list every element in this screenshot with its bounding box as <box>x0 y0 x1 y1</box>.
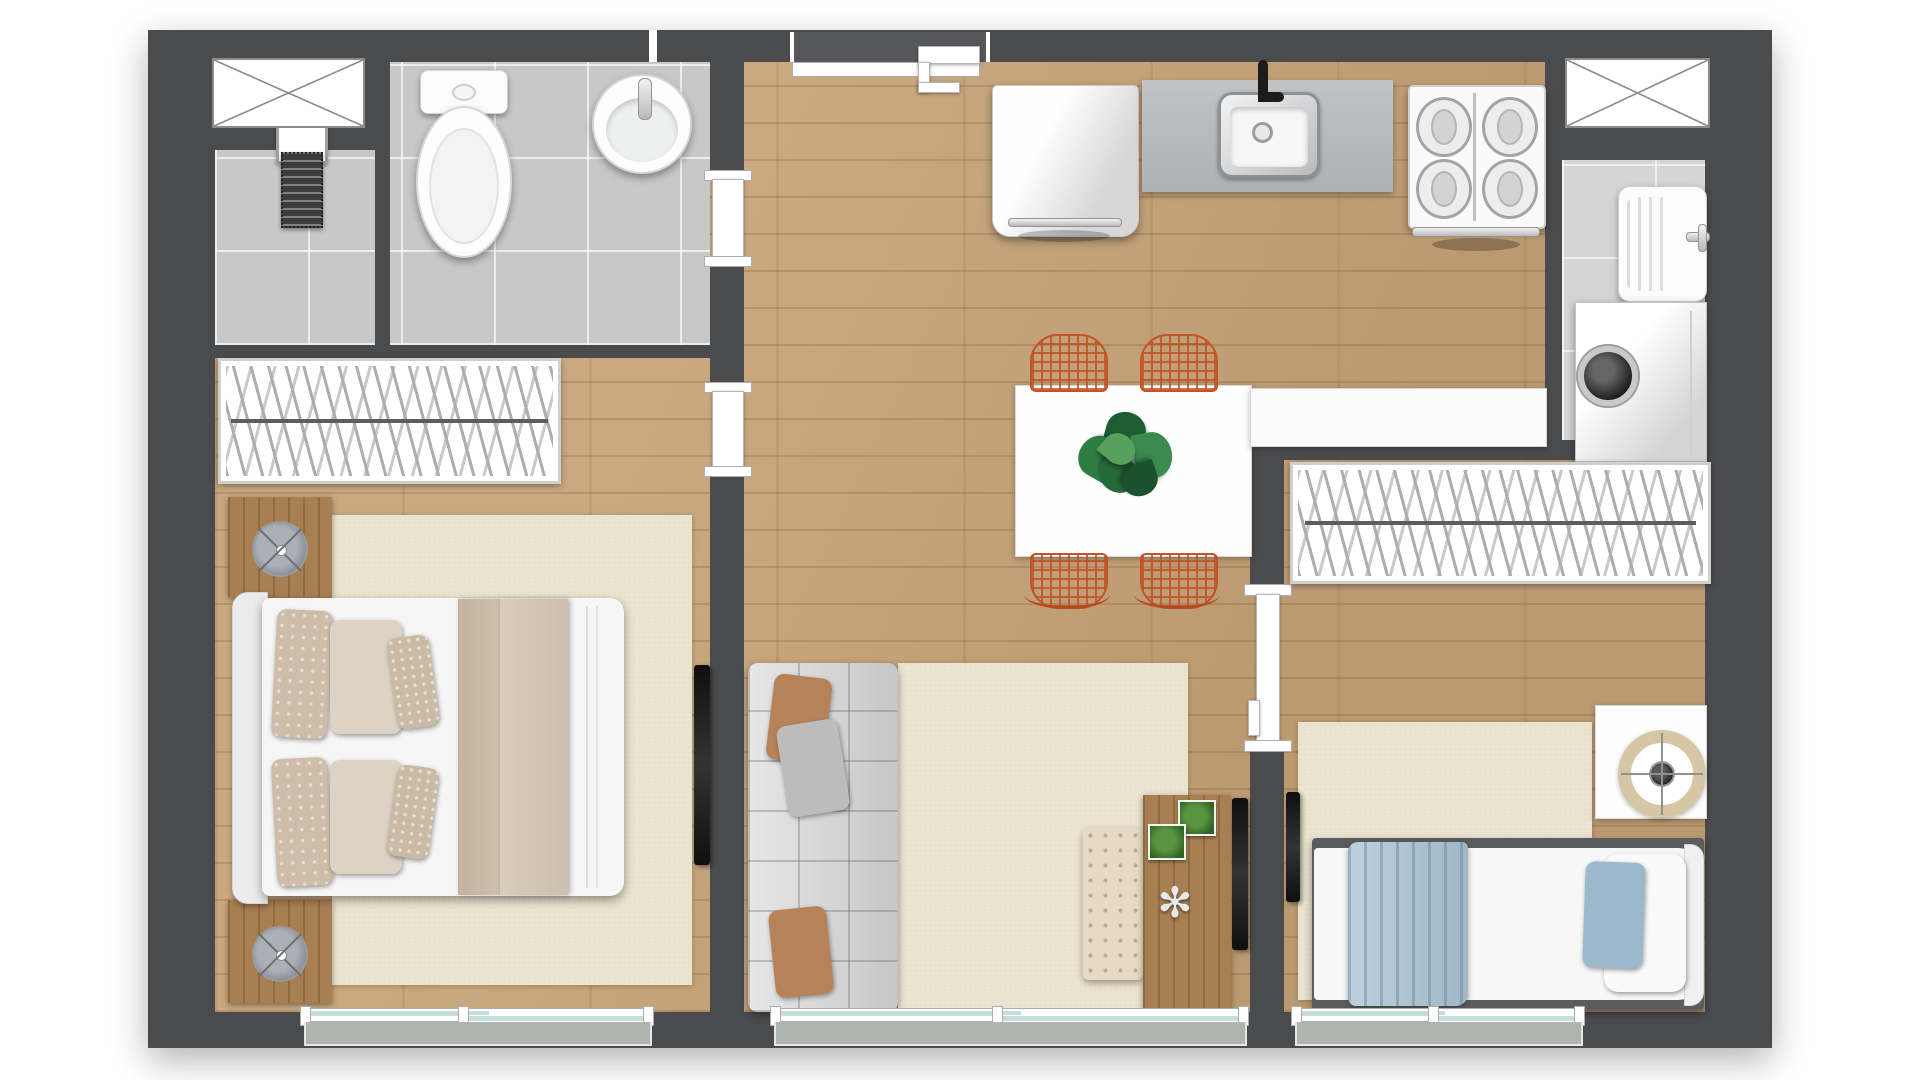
window-glass <box>466 1015 648 1022</box>
bed-pillow <box>271 609 334 740</box>
bed-throw-band <box>458 599 500 895</box>
bed-throw-band <box>500 599 568 895</box>
bedroom1-door-jamb-bottom <box>704 466 752 477</box>
wardrobe-rail <box>1305 521 1695 525</box>
laundry-faucet-stem <box>1698 224 1707 252</box>
bathroom-door-jamb-bottom <box>704 256 752 267</box>
wall-shower-divider <box>375 62 390 345</box>
kitchen-sink-drain <box>1252 122 1273 143</box>
laundry-window-icon <box>1565 58 1710 128</box>
sofa-pillow-brown <box>768 905 835 999</box>
duvet-crease <box>596 606 598 888</box>
stove-shadow <box>1432 238 1520 251</box>
chair-seat-arc <box>1024 580 1110 609</box>
window-glass <box>1299 1010 1446 1017</box>
bathroom-faucet <box>638 78 652 120</box>
stove-burner <box>1416 159 1472 219</box>
plant-pot-icon <box>1148 824 1186 860</box>
dining-chair <box>1140 334 1218 392</box>
stove-divider <box>1473 93 1476 221</box>
stove-burner <box>1416 97 1472 157</box>
shower-column <box>281 152 323 228</box>
wall-kitchen-laundry <box>1545 62 1562 445</box>
entrance-threshold <box>792 62 980 77</box>
bedroom1-door <box>712 391 744 470</box>
bathroom-window-icon <box>212 58 365 128</box>
toilet-seat <box>429 128 499 244</box>
wall-bedroom2-a <box>1250 445 1284 592</box>
toilet-flush-button <box>452 84 476 101</box>
table-lamp-icon <box>252 926 308 982</box>
stove-burner <box>1482 97 1538 157</box>
balcony-slab <box>774 1022 1247 1046</box>
balcony-slab <box>1295 1022 1583 1046</box>
ottoman-pouf <box>1083 828 1143 980</box>
toilet-bowl <box>416 106 512 258</box>
bedroom2-wardrobe <box>1290 462 1711 584</box>
floor-plan-canvas: ✻ <box>0 0 1920 1080</box>
bed2-pillow-blue <box>1582 861 1646 969</box>
dining-chair <box>1030 334 1108 392</box>
refrigerator <box>992 85 1139 237</box>
bedroom1-tv <box>694 665 710 865</box>
stove-burner <box>1482 159 1538 219</box>
wall-joint-slit <box>649 30 657 62</box>
snowflake-decor-icon: ✻ <box>1150 878 1200 928</box>
refrigerator-handle <box>1008 218 1122 227</box>
peninsula-counter <box>1250 388 1547 447</box>
bed2-headboard <box>1684 844 1704 1006</box>
duvet-crease <box>586 606 588 888</box>
washer-drum <box>1578 346 1638 406</box>
wall-hall-left-c <box>710 468 744 1012</box>
kitchen-faucet-spout <box>1258 92 1284 102</box>
chair-seat-arc <box>1134 580 1220 609</box>
refrigerator-shadow <box>1018 230 1110 242</box>
desk-chair <box>1618 730 1706 818</box>
wall-bedroom2-b <box>1250 748 1284 1012</box>
wall-hall-left-a <box>710 62 744 180</box>
wall-hall-left-b <box>710 258 744 388</box>
washer-seam <box>1690 311 1692 453</box>
window-glass <box>778 1010 1022 1017</box>
bed2-blue-blanket <box>1348 842 1468 1006</box>
entrance-door-handle-bar <box>918 82 960 93</box>
wardrobe-rail <box>231 419 548 423</box>
wall-bathroom-bottom <box>215 345 710 358</box>
stove-handle <box>1412 227 1540 237</box>
window-glass <box>1000 1015 1242 1022</box>
laundry-tank-ribs <box>1627 197 1669 291</box>
table-lamp-icon <box>252 521 308 577</box>
bed-pillow <box>271 757 334 888</box>
monstera-plant <box>1072 412 1187 512</box>
stove <box>1408 85 1546 229</box>
window-glass <box>1436 1015 1578 1022</box>
living-tv <box>1232 798 1248 950</box>
balcony-slab <box>304 1022 652 1046</box>
bedroom1-wardrobe <box>218 358 561 484</box>
bedroom2-door-handle <box>1248 700 1260 736</box>
laundry-tank <box>1618 186 1707 302</box>
bedroom2-door-jamb-bottom <box>1244 740 1292 752</box>
bedroom2-tv <box>1286 792 1300 902</box>
bathroom-door <box>712 179 744 260</box>
